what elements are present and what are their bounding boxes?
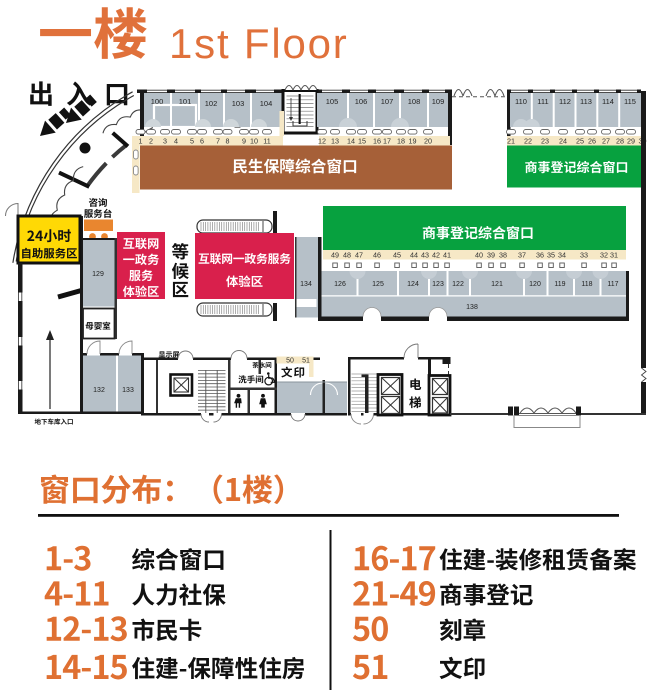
svg-text:112: 112 (559, 97, 571, 106)
svg-text:45: 45 (393, 251, 401, 260)
svg-text:39: 39 (487, 251, 495, 260)
svg-text:5: 5 (190, 137, 194, 146)
svg-text:113: 113 (580, 97, 592, 106)
svg-text:38: 38 (499, 251, 507, 260)
svg-text:28: 28 (616, 137, 624, 146)
svg-text:26: 26 (588, 137, 596, 146)
svg-text:104: 104 (260, 99, 273, 108)
svg-text:36: 36 (536, 251, 544, 260)
svg-text:138: 138 (466, 304, 478, 311)
svg-text:17: 17 (383, 137, 391, 146)
svg-text:4: 4 (174, 137, 178, 146)
svg-text:132: 132 (93, 387, 105, 394)
svg-text:125: 125 (372, 281, 384, 288)
svg-text:119: 119 (554, 281, 565, 288)
svg-text:11: 11 (263, 137, 270, 146)
svg-text:47: 47 (355, 251, 363, 260)
svg-text:108: 108 (408, 97, 421, 106)
svg-text:1st Floor: 1st Floor (169, 20, 349, 67)
svg-text:23: 23 (541, 137, 549, 146)
svg-text:109: 109 (432, 97, 445, 106)
svg-text:46: 46 (373, 251, 381, 260)
svg-text:126: 126 (334, 281, 346, 288)
svg-text:24: 24 (559, 137, 567, 146)
svg-text:25: 25 (576, 137, 584, 146)
svg-text:42: 42 (432, 251, 440, 260)
svg-text:40: 40 (475, 251, 483, 260)
svg-text:111: 111 (537, 97, 548, 106)
svg-text:32: 32 (600, 251, 608, 260)
svg-text:2: 2 (149, 137, 153, 146)
svg-text:48: 48 (343, 251, 351, 260)
svg-text:129: 129 (92, 271, 104, 278)
svg-text:105: 105 (326, 97, 339, 106)
svg-text:1: 1 (139, 137, 143, 146)
svg-text:114: 114 (602, 97, 614, 106)
svg-text:124: 124 (407, 281, 419, 288)
svg-text:7: 7 (216, 137, 220, 146)
svg-text:107: 107 (381, 97, 394, 106)
svg-text:18: 18 (397, 137, 405, 146)
svg-text:29: 29 (627, 137, 635, 146)
svg-text:122: 122 (452, 281, 464, 288)
svg-text:35: 35 (547, 251, 555, 260)
svg-text:22: 22 (524, 137, 532, 146)
svg-text:121: 121 (491, 281, 503, 288)
svg-text:41: 41 (443, 251, 451, 260)
svg-text:44: 44 (410, 251, 418, 260)
svg-text:8: 8 (226, 137, 230, 146)
svg-text:27: 27 (602, 137, 610, 146)
svg-text:14: 14 (347, 137, 355, 146)
svg-text:102: 102 (205, 99, 218, 108)
svg-text:118: 118 (581, 281, 592, 288)
svg-text:19: 19 (409, 137, 417, 146)
svg-text:9: 9 (242, 137, 246, 146)
svg-text:12: 12 (318, 137, 326, 146)
svg-text:15: 15 (358, 137, 366, 146)
svg-text:43: 43 (421, 251, 429, 260)
svg-text:49: 49 (331, 251, 339, 260)
svg-text:134: 134 (300, 281, 312, 288)
svg-text:34: 34 (558, 251, 566, 260)
svg-text:10: 10 (250, 137, 258, 146)
svg-text:20: 20 (424, 137, 432, 146)
svg-text:106: 106 (355, 97, 368, 106)
svg-text:103: 103 (232, 99, 245, 108)
svg-text:31: 31 (610, 251, 618, 260)
svg-text:117: 117 (607, 281, 618, 288)
svg-text:115: 115 (624, 97, 636, 106)
svg-text:13: 13 (331, 137, 339, 146)
svg-text:120: 120 (529, 281, 541, 288)
svg-text:33: 33 (580, 251, 588, 260)
svg-text:51: 51 (302, 358, 310, 365)
svg-text:16: 16 (373, 137, 381, 146)
svg-text:133: 133 (122, 387, 134, 394)
svg-text:37: 37 (518, 251, 526, 260)
svg-text:123: 123 (432, 281, 444, 288)
svg-text:21: 21 (507, 137, 515, 146)
svg-text:6: 6 (200, 137, 204, 146)
svg-text:50: 50 (286, 358, 294, 365)
svg-text:110: 110 (515, 97, 527, 106)
svg-text:3: 3 (163, 137, 167, 146)
